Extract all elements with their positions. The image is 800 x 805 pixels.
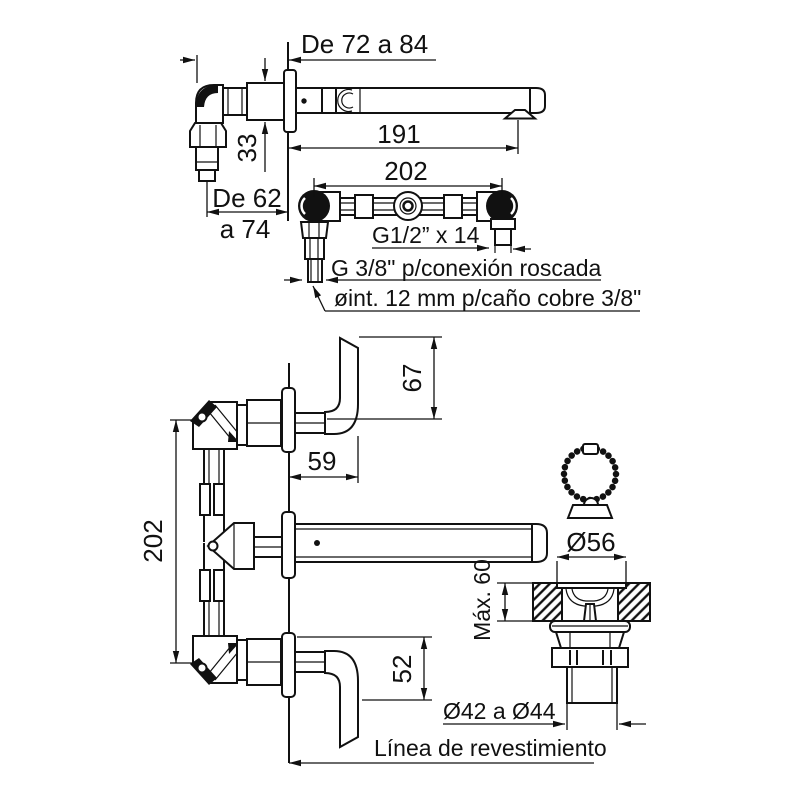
inlet-elbow: [190, 85, 226, 181]
escutcheon-side: [284, 70, 296, 132]
valve-body-side: [223, 83, 284, 120]
dim-max-deck-thickness: Máx. 60: [469, 559, 533, 641]
set-screw: [301, 98, 306, 103]
dim-spout-length-label: 191: [377, 119, 420, 149]
inlet-thread-label: G 3/8" p/conexión roscada: [331, 255, 601, 281]
faucet-spec-sheet: De 72 a 84 191 33 De 62 a 74: [0, 0, 800, 800]
dim-flange-diameter-label: Ø56: [566, 527, 615, 557]
outlet-thread-label: G1/2” x 14: [372, 222, 480, 248]
dim-inlet-depth: De 62 a 74: [207, 181, 288, 244]
bottom-valve-assembly: [190, 543, 358, 747]
dim-embed-depth-top: De 72 a 84: [180, 29, 436, 83]
dim-bottom-handle-label: 52: [387, 655, 417, 684]
dim-inlet-depth-label-2: a 74: [220, 214, 271, 244]
label-copper-pipe: øint. 12 mm p/caño cobre 3/8": [313, 285, 641, 311]
escutcheon-spout: [282, 512, 295, 578]
drain-view-drawing: Ø56 Máx. 60: [443, 444, 650, 730]
finish-line-callout: Línea de revestimiento: [289, 735, 607, 763]
dim-top-handle-label: 67: [397, 364, 427, 393]
spout-tee-front: [208, 512, 547, 578]
manifold-body: [298, 190, 518, 222]
chain-and-stopper: [564, 444, 616, 518]
center-union: [394, 192, 422, 220]
dim-inlet-depth-label-1: De 62: [212, 183, 281, 213]
dim-embed-depth-label: De 72 a 84: [301, 29, 428, 59]
dim-valve-centers: 202: [138, 420, 193, 663]
spout-front: [295, 524, 547, 562]
dim-flange-diameter: Ø56: [557, 527, 626, 583]
copper-pipe-label: øint. 12 mm p/caño cobre 3/8": [334, 285, 641, 311]
dim-handle-offset: 59: [289, 436, 358, 483]
top-valve-assembly: [190, 338, 358, 542]
dim-tailpiece-label: Ø42 a Ø44: [443, 698, 556, 724]
manifold-view-drawing: 202 G1/2” x 14 G 3/8" p/conexión roscada…: [284, 156, 641, 311]
label-inlet-thread: G 3/8" p/conexión roscada: [284, 255, 601, 281]
dim-spout-length: 191: [289, 119, 518, 154]
dim-valve-centers-label: 202: [138, 519, 168, 562]
escutcheon-top: [282, 388, 295, 452]
stopper: [568, 505, 612, 518]
spout-side: [296, 88, 545, 119]
drain-body: [550, 583, 630, 703]
locknut: [552, 648, 628, 667]
dim-body-height-label: 33: [232, 134, 262, 163]
right-outlet-stub: [491, 219, 515, 253]
tailpiece: [567, 667, 617, 703]
dim-handle-offset-label: 59: [308, 446, 337, 476]
faucet-technical-drawing: De 72 a 84 191 33 De 62 a 74: [0, 0, 800, 800]
dim-centers-distance: 202: [314, 156, 502, 197]
bead-chain-ring: [564, 448, 616, 500]
dim-centers-distance-label: 202: [384, 156, 427, 186]
left-inlet-adapter: [301, 222, 328, 282]
finish-line-label: Línea de revestimiento: [374, 735, 607, 761]
brand-mark: [314, 540, 320, 546]
dim-max-deck-label: Máx. 60: [469, 559, 495, 641]
